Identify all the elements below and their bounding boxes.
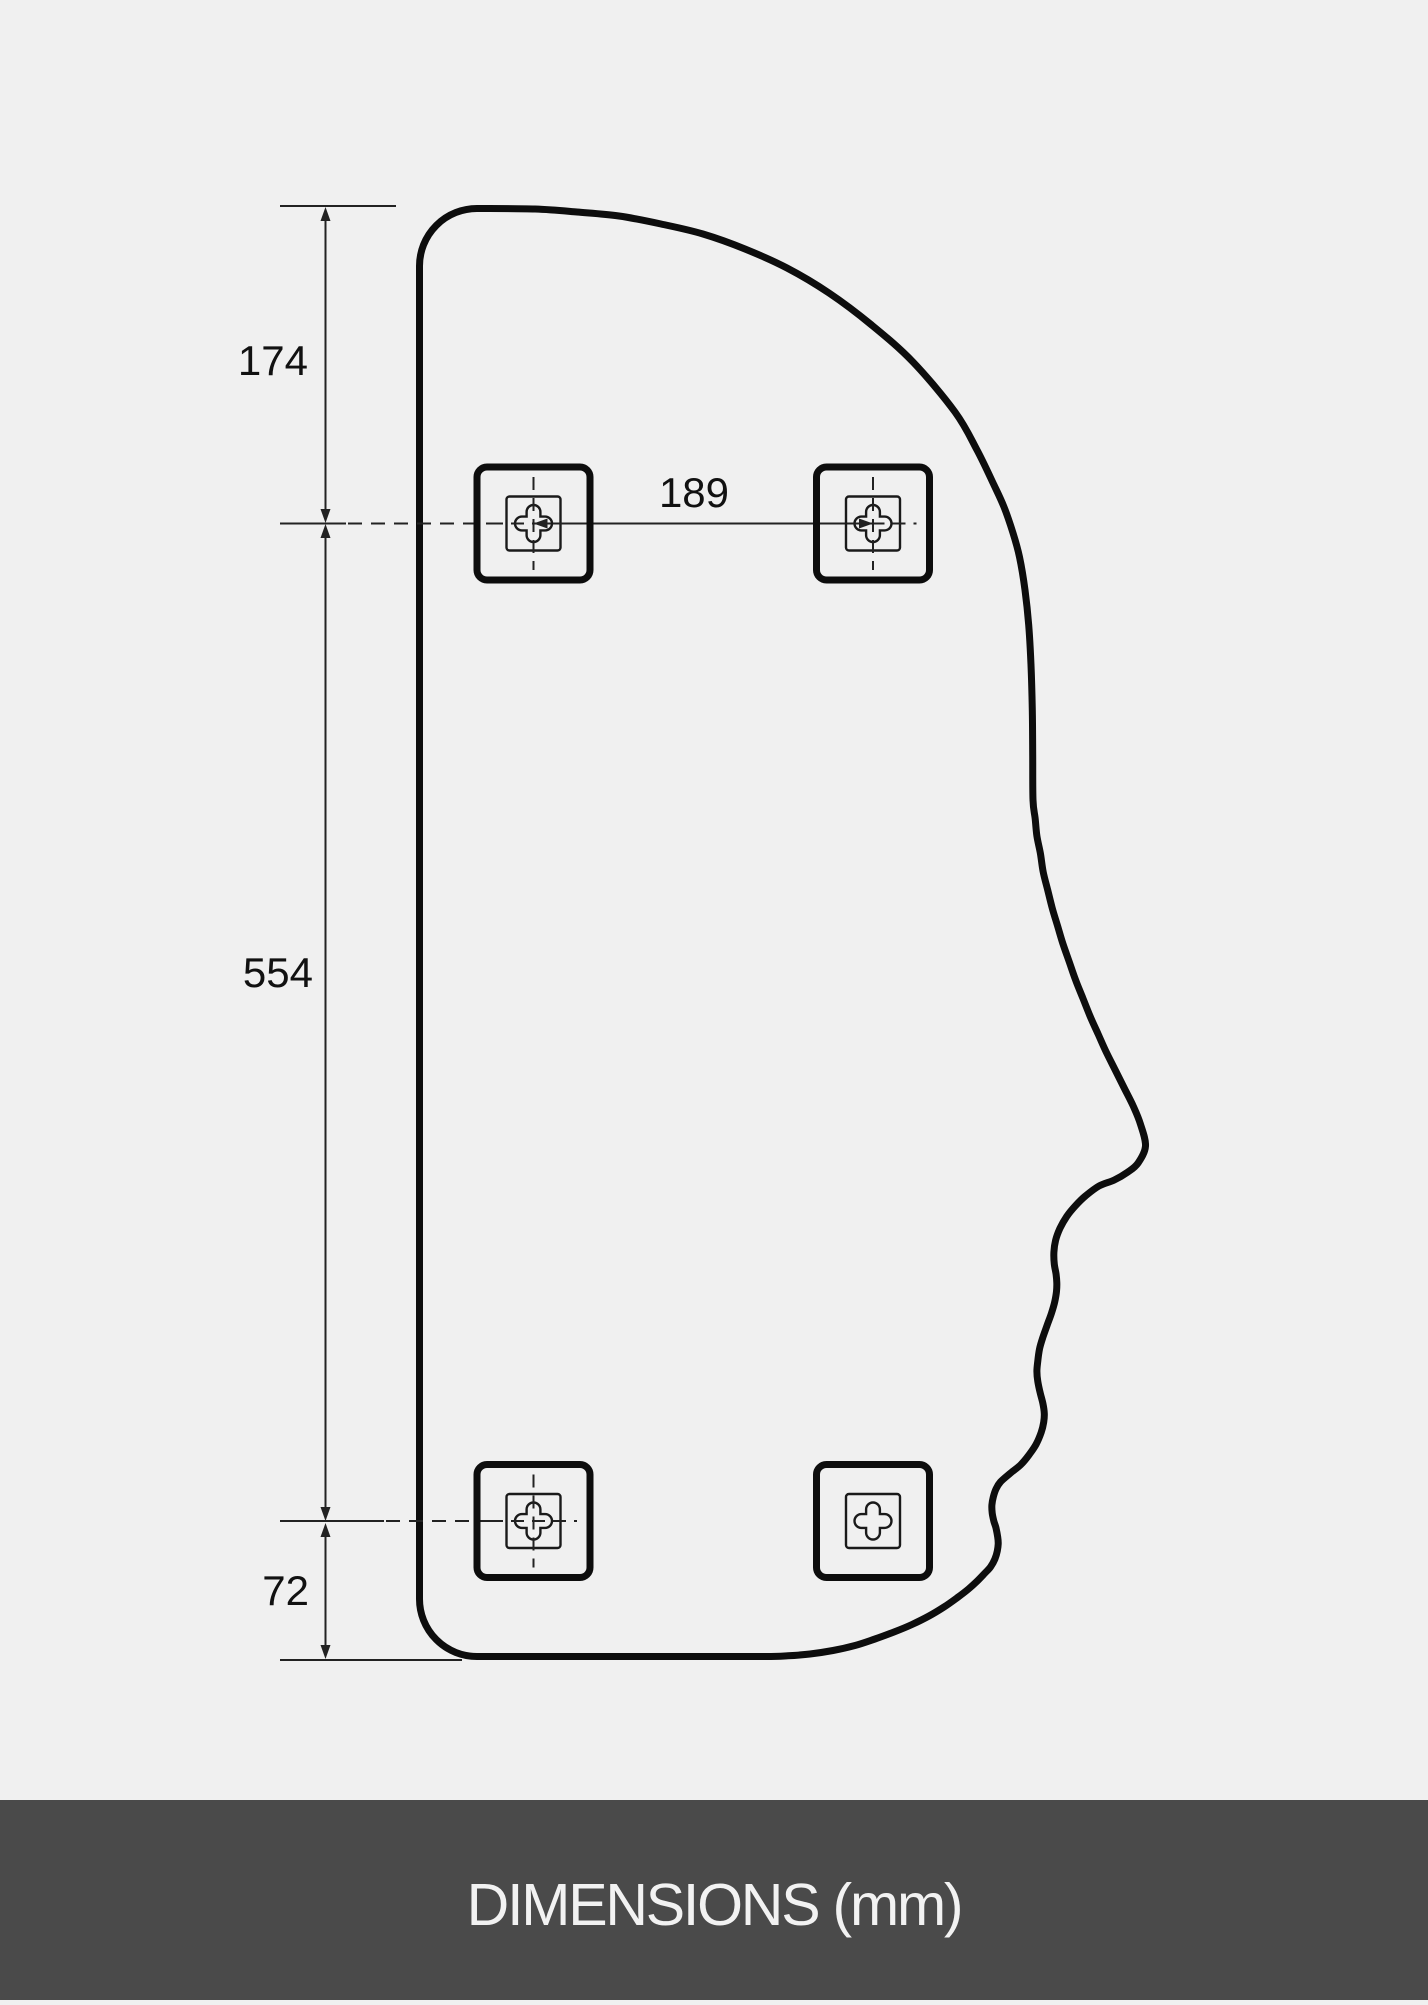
svg-text:DIMENSIONS (mm): DIMENSIONS (mm) (467, 1872, 962, 1938)
svg-text:72: 72 (262, 1567, 309, 1614)
svg-text:174: 174 (238, 337, 308, 384)
svg-text:554: 554 (243, 949, 313, 996)
svg-text:189: 189 (659, 469, 729, 516)
